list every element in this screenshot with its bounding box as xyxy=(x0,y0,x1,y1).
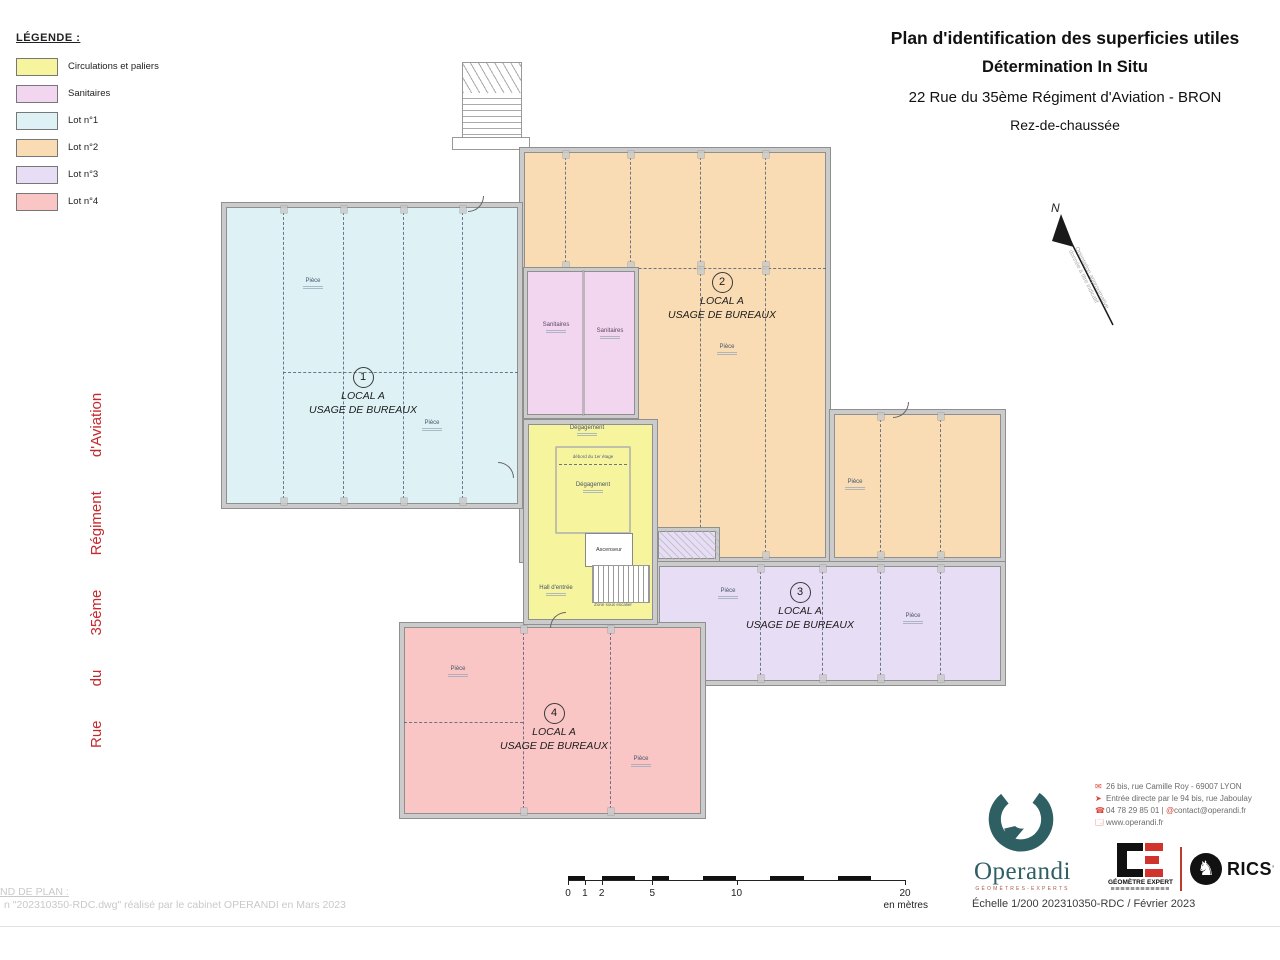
partition xyxy=(940,566,941,681)
room-label-hall: Hall d'entrée xyxy=(528,585,584,596)
legend: LÉGENDE : Circulations et paliers Sanita… xyxy=(16,32,159,220)
legend-swatch-lot3 xyxy=(16,166,58,184)
degagement-room: débord du 1er étage Dégagement xyxy=(556,447,630,533)
plan-level: Rez-de-chaussée xyxy=(870,117,1260,133)
legend-label: Lot n°3 xyxy=(68,169,98,180)
rics-lion-icon: ♞ xyxy=(1190,853,1222,885)
north-arrow: N Orientation approximative donnée à tit… xyxy=(1025,190,1135,335)
legend-row: Lot n°4 xyxy=(16,193,159,210)
plan-address: 22 Rue du 35ème Régiment d'Aviation - BR… xyxy=(870,89,1260,106)
room-label-debord: débord du 1er étage xyxy=(557,454,629,459)
room-label: Pièce xyxy=(621,756,661,767)
partition xyxy=(283,207,284,504)
scale-segment xyxy=(770,876,804,880)
company-contacts: ✉26 bis, rue Camille Roy - 69007 LYON ➤E… xyxy=(1095,781,1270,829)
legend-row: Lot n°2 xyxy=(16,139,159,156)
partition xyxy=(403,207,404,504)
scan-edge-line xyxy=(0,926,1280,927)
rics-logo: ♞ RICS ’ xyxy=(1190,853,1274,885)
rics-label: RICS xyxy=(1227,859,1272,880)
legend-swatch-circulations xyxy=(16,58,58,76)
street-label: Rue du 35ème Régiment d'Aviation xyxy=(88,393,105,748)
scale-bar: 0 1 2 5 10 20 en mètres xyxy=(558,866,928,912)
zone1-name-line1: LOCAL A xyxy=(283,390,443,404)
legend-swatch-lot4 xyxy=(16,193,58,211)
scale-reference: Échelle 1/200 202310350-RDC / Février 20… xyxy=(972,898,1195,910)
north-letter: N xyxy=(1051,201,1060,215)
elevator: Ascenseur xyxy=(585,533,633,567)
zone4-number: 4 xyxy=(544,703,565,724)
scale-tick-2: 2 xyxy=(592,888,612,899)
partition xyxy=(462,207,463,504)
zone4-name-line2: USAGE DE BUREAUX xyxy=(474,740,634,754)
staircase-landing xyxy=(452,137,530,150)
scale-segment xyxy=(703,876,737,880)
zone-lot4: 4 LOCAL A USAGE DE BUREAUX Pièce Pièce xyxy=(400,623,705,818)
ge-label: GÉOMÈTRE EXPERT xyxy=(1108,879,1172,886)
zone2-name-line1: LOCAL A xyxy=(642,295,802,309)
contact-website: 🗔www.operandi.fr xyxy=(1095,817,1270,829)
contact-entrance: ➤Entrée directe par le 94 bis, rue Jabou… xyxy=(1095,793,1270,805)
room-label: Pièce xyxy=(835,479,875,490)
legend-label: Lot n°2 xyxy=(68,142,98,153)
room-label: Pièce xyxy=(893,613,933,624)
room-label: Pièce xyxy=(438,666,478,677)
scale-unit: en mètres xyxy=(838,900,928,911)
partition xyxy=(940,414,941,558)
operandi-logo xyxy=(975,780,1067,866)
geometre-expert-logo: GÉOMÈTRE EXPERT xyxy=(1108,843,1172,890)
room-label: Pièce xyxy=(293,278,333,289)
at-icon: @ xyxy=(1166,805,1174,817)
company-tagline: GÉOMÈTRES-EXPERTS xyxy=(960,886,1085,892)
zone2-name-line2: USAGE DE BUREAUX xyxy=(642,309,802,323)
zone3-name-line2: USAGE DE BUREAUX xyxy=(720,619,880,633)
partition xyxy=(630,152,631,268)
logo-divider xyxy=(1180,847,1182,891)
legend-label: Sanitaires xyxy=(68,88,110,99)
phone-icon: ☎ xyxy=(1095,805,1106,817)
contact-address: ✉26 bis, rue Camille Roy - 69007 LYON xyxy=(1095,781,1270,793)
step-hatch xyxy=(659,530,719,560)
rics-mark-suffix: ’ xyxy=(1272,864,1274,874)
web-icon: 🗔 xyxy=(1095,817,1106,829)
zone-lot3-main: 3 LOCAL A USAGE DE BUREAUX Pièce Pièce xyxy=(655,562,1005,685)
room-label: Pièce xyxy=(708,588,748,599)
zone1-number: 1 xyxy=(353,367,374,388)
plan-footer: ND DE PLAN : n "202310350-RDC.dwg" réali… xyxy=(0,886,346,912)
zone2-number: 2 xyxy=(712,272,733,293)
room-label-sanitaires: Sanitaires xyxy=(531,322,581,333)
room-label-degagement: Dégagement xyxy=(557,425,617,436)
partition xyxy=(880,566,881,681)
zone3-number: 3 xyxy=(790,582,811,603)
mail-icon: ✉ xyxy=(1095,781,1106,793)
title-block: Plan d'identification des superficies ut… xyxy=(870,28,1260,133)
north-arrowhead xyxy=(1052,214,1074,247)
ge-monogram-icon xyxy=(1117,843,1163,877)
zone-circulations: Dégagement débord du 1er étage Dégagemen… xyxy=(524,420,657,624)
scale-tick-5: 5 xyxy=(642,888,662,899)
legend-row: Lot n°3 xyxy=(16,166,159,183)
partition xyxy=(583,271,584,415)
plan-title: Plan d'identification des superficies ut… xyxy=(870,28,1260,49)
room-label: Pièce xyxy=(412,420,452,431)
scale-segment xyxy=(568,876,585,880)
zone1-label: 1 LOCAL A USAGE DE BUREAUX xyxy=(283,367,443,417)
legend-title: LÉGENDE : xyxy=(16,32,159,44)
zone-sanitaires: Sanitaires Sanitaires xyxy=(524,268,638,418)
legend-row: Lot n°1 xyxy=(16,112,159,129)
legend-swatch-lot1 xyxy=(16,112,58,130)
ge-sub-bar xyxy=(1111,887,1169,890)
scale-segment xyxy=(838,876,872,880)
partition xyxy=(880,414,881,558)
partition xyxy=(343,207,344,504)
scale-tick-20: 20 xyxy=(895,888,915,899)
legend-swatch-lot2 xyxy=(16,139,58,157)
contact-email: contact@operandi.fr xyxy=(1174,806,1246,815)
legend-label: Lot n°1 xyxy=(68,115,98,126)
partition xyxy=(565,152,566,268)
plan-footer-line2: n "202310350-RDC.dwg" réalisé par le cab… xyxy=(4,899,346,912)
company-name: Operandi xyxy=(960,858,1085,886)
interior-staircase xyxy=(592,565,650,603)
plan-subtitle: Détermination In Situ xyxy=(870,58,1260,77)
room-label-sous-escalier: Zone sous escalier xyxy=(580,602,646,607)
legend-row: Circulations et paliers xyxy=(16,58,159,75)
room-label: Pièce xyxy=(707,344,747,355)
staircase-treads xyxy=(463,97,521,141)
zone-lot2-wing: Pièce xyxy=(830,410,1005,562)
partition xyxy=(765,152,766,268)
zone4-name-line1: LOCAL A xyxy=(474,726,634,740)
arrow-icon: ➤ xyxy=(1095,793,1106,805)
partition xyxy=(700,152,701,268)
legend-label: Circulations et paliers xyxy=(68,61,159,72)
contact-phone-email: ☎04 78 29 85 01 | @contact@operandi.fr xyxy=(1095,805,1270,817)
scale-segment xyxy=(602,876,636,880)
zone1-name-line2: USAGE DE BUREAUX xyxy=(283,404,443,418)
scale-tick-10: 10 xyxy=(727,888,747,899)
zone2-label: 2 LOCAL A USAGE DE BUREAUX xyxy=(642,272,802,322)
zone3-name-line1: LOCAL A xyxy=(720,605,880,619)
partition xyxy=(559,464,627,465)
room-label-degagement: Dégagement xyxy=(573,482,613,493)
north-note: Orientation approximative donnée à titre… xyxy=(1067,246,1110,314)
legend-label: Lot n°4 xyxy=(68,196,98,207)
zone4-label: 4 LOCAL A USAGE DE BUREAUX xyxy=(474,703,634,753)
staircase-winders xyxy=(463,63,521,93)
zone-lot1: 1 LOCAL A USAGE DE BUREAUX Pièce Pièce xyxy=(222,203,522,508)
floor-plan-page: LÉGENDE : Circulations et paliers Sanita… xyxy=(0,0,1280,960)
legend-row: Sanitaires xyxy=(16,85,159,102)
legend-swatch-sanitaires xyxy=(16,85,58,103)
exterior-staircase xyxy=(462,62,522,142)
room-label-sanitaires: Sanitaires xyxy=(585,328,635,339)
plan-footer-line1: ND DE PLAN : xyxy=(0,886,346,899)
scale-segment xyxy=(652,876,669,880)
